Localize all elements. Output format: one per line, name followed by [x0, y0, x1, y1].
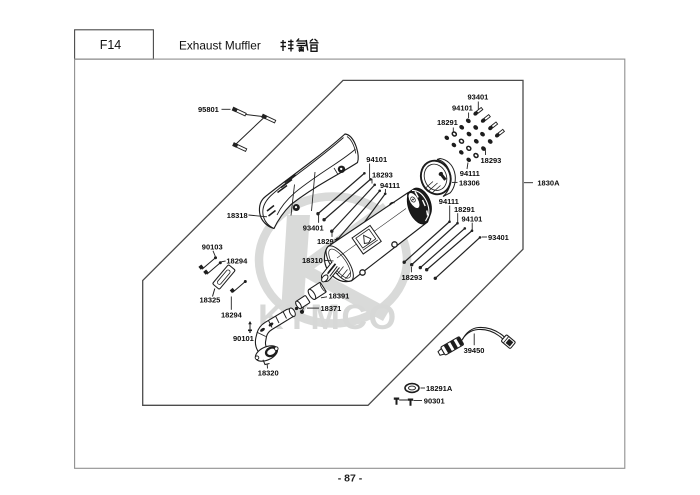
- svg-text:18325: 18325: [200, 296, 221, 305]
- svg-text:90101: 90101: [233, 334, 254, 343]
- svg-text:1830A: 1830A: [537, 179, 560, 188]
- svg-text:18306: 18306: [459, 178, 480, 187]
- svg-text:39450: 39450: [464, 346, 485, 355]
- svg-text:18291A: 18291A: [426, 384, 453, 393]
- svg-text:93401: 93401: [303, 223, 324, 232]
- svg-text:18294: 18294: [226, 256, 248, 265]
- svg-text:94101: 94101: [462, 215, 483, 224]
- svg-text:18293: 18293: [481, 156, 502, 165]
- svg-text:18391: 18391: [329, 291, 350, 300]
- svg-text:18291: 18291: [437, 118, 458, 127]
- svg-text:- 87 -: - 87 -: [338, 473, 363, 485]
- svg-text:94101: 94101: [366, 155, 387, 164]
- svg-text:18291: 18291: [454, 205, 475, 214]
- svg-text:93401: 93401: [468, 92, 489, 101]
- svg-text:93401: 93401: [488, 233, 509, 242]
- svg-text:F14: F14: [100, 38, 122, 52]
- svg-text:94111: 94111: [460, 169, 480, 178]
- svg-text:18293: 18293: [372, 170, 393, 179]
- svg-text:18310: 18310: [302, 256, 323, 265]
- svg-text:18318: 18318: [227, 211, 248, 220]
- svg-text:Exhaust Muffler: Exhaust Muffler: [179, 39, 261, 53]
- svg-text:18320: 18320: [258, 369, 279, 378]
- svg-text:90103: 90103: [202, 243, 223, 252]
- svg-text:18293: 18293: [402, 273, 423, 282]
- svg-text:95801: 95801: [198, 105, 219, 114]
- svg-text:18371: 18371: [321, 304, 342, 313]
- svg-text:90301: 90301: [424, 397, 445, 406]
- svg-text:18294: 18294: [221, 311, 243, 320]
- svg-text:94101: 94101: [452, 104, 473, 113]
- svg-text:94111: 94111: [380, 181, 400, 190]
